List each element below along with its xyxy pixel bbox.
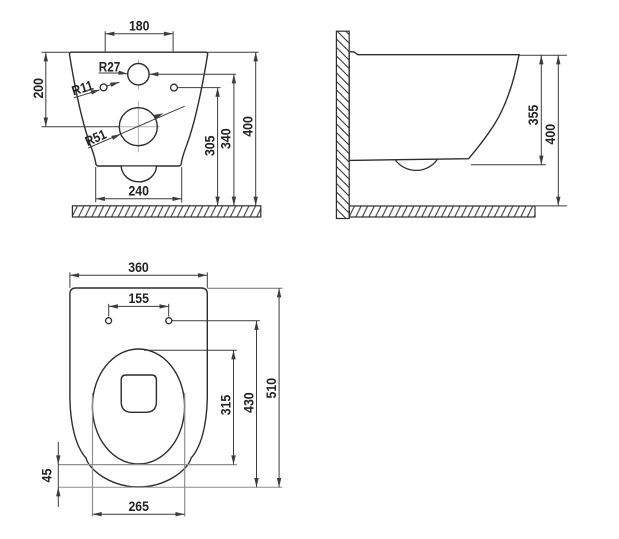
svg-text:430: 430: [241, 392, 256, 413]
svg-text:315: 315: [218, 394, 233, 415]
svg-text:155: 155: [128, 291, 149, 306]
svg-text:45: 45: [40, 468, 55, 482]
svg-text:340: 340: [219, 128, 234, 149]
svg-text:265: 265: [128, 499, 149, 514]
svg-text:305: 305: [202, 135, 217, 156]
svg-text:355: 355: [526, 104, 541, 125]
svg-text:400: 400: [543, 124, 558, 145]
svg-text:510: 510: [264, 378, 279, 399]
svg-text:R27: R27: [99, 60, 121, 75]
svg-text:360: 360: [128, 260, 149, 275]
svg-text:240: 240: [128, 184, 149, 199]
svg-text:400: 400: [241, 116, 256, 136]
svg-text:200: 200: [31, 78, 46, 99]
svg-text:180: 180: [129, 19, 150, 34]
